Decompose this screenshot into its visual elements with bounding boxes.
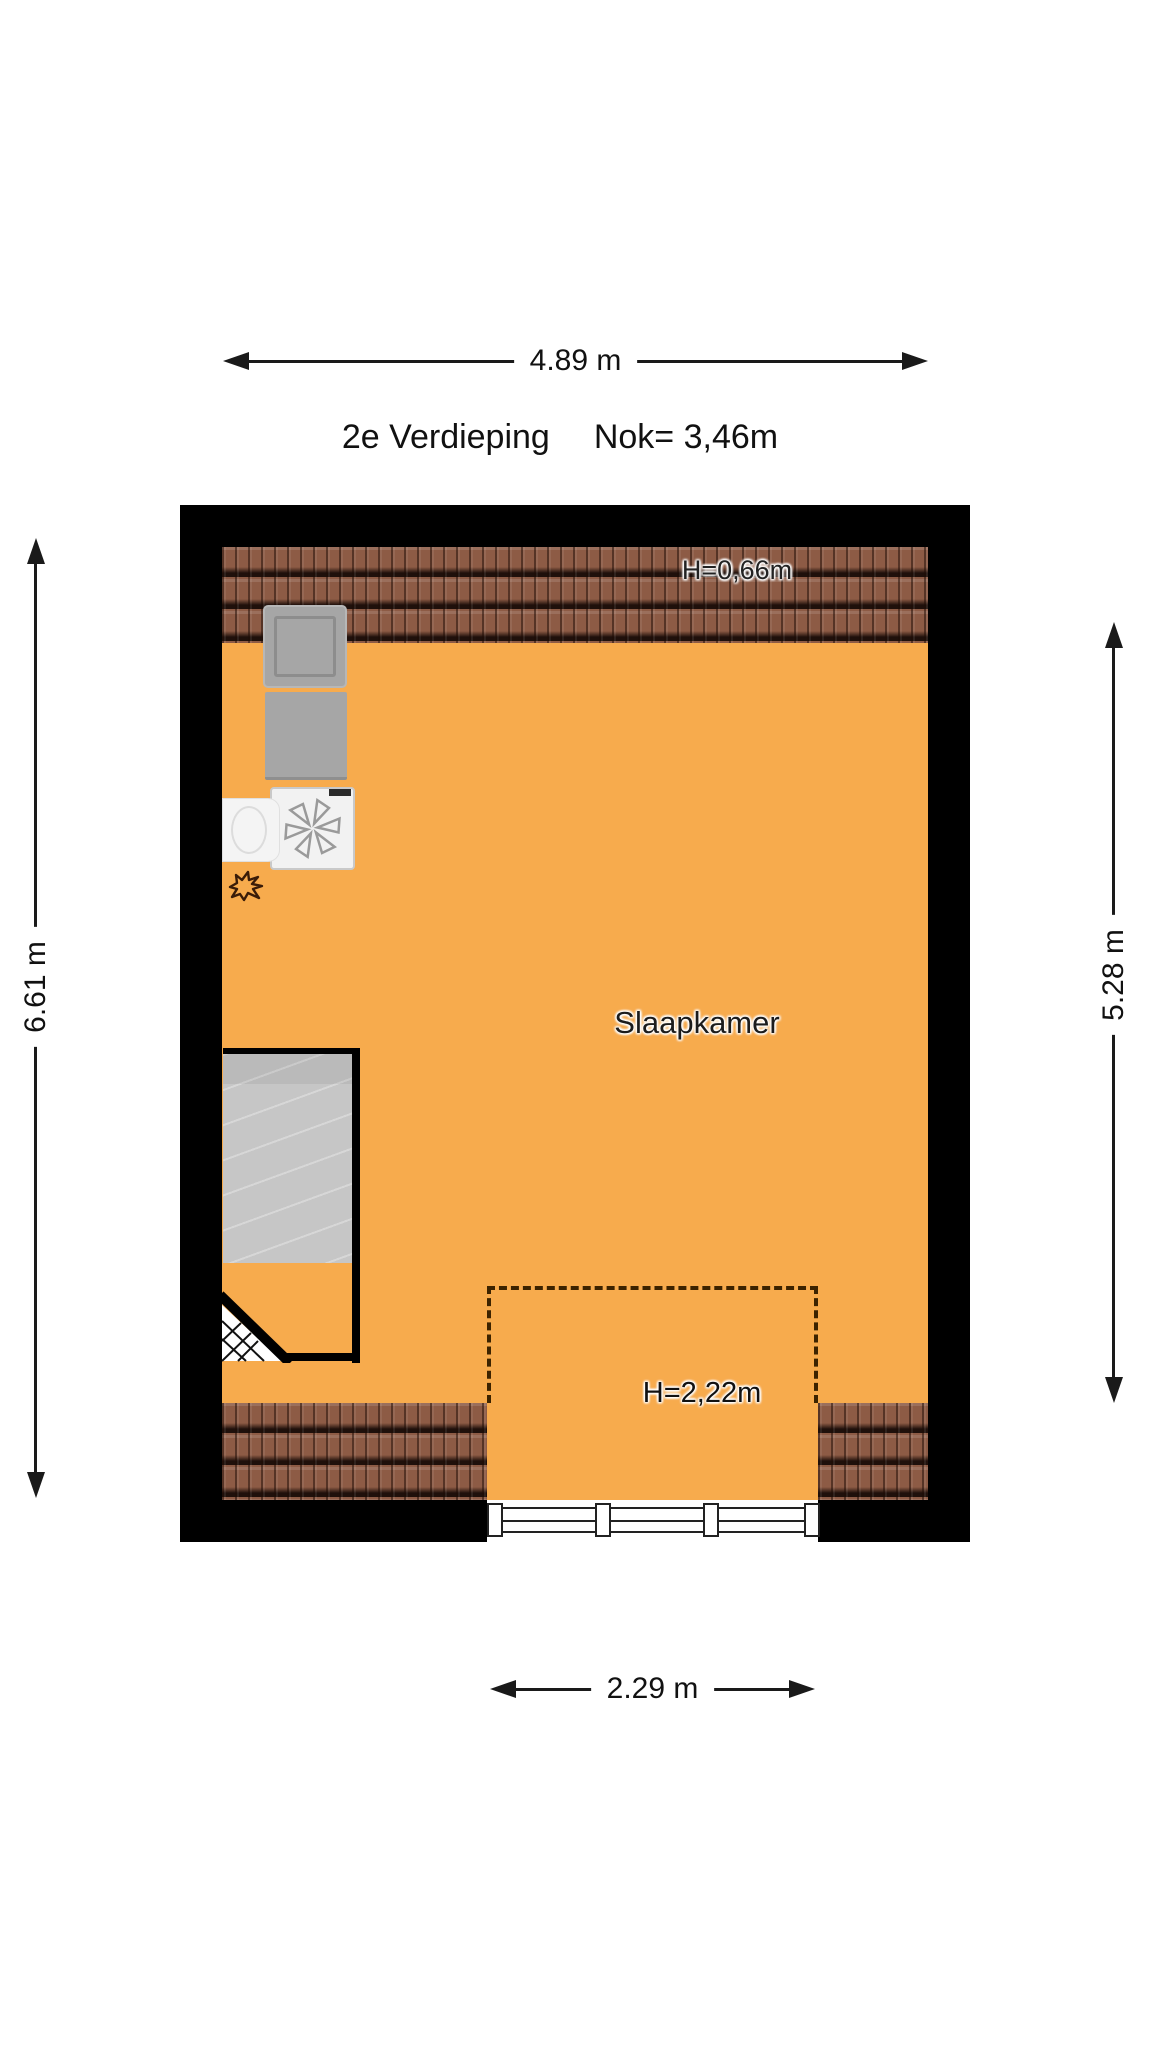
arrowhead-right-icon [902, 352, 928, 370]
stair-side-wall [352, 1054, 360, 1363]
dormer-dashed-left [487, 1286, 491, 1403]
dimension-right: 5.28 m [1100, 622, 1128, 1403]
arrowhead-right-icon [789, 1680, 815, 1698]
sink-unit [222, 798, 280, 862]
window-mullion [703, 1503, 719, 1537]
dimension-right-label: 5.28 m [1097, 915, 1131, 1035]
window-post [804, 1503, 820, 1537]
window-mullion [595, 1503, 611, 1537]
dimension-bottom-label: 2.29 m [591, 1672, 715, 1706]
ridge-height: Nok= 3,46m [594, 418, 778, 456]
arrowhead-down-icon [27, 1472, 45, 1498]
dimension-bottom: 2.29 m [490, 1674, 815, 1704]
dimension-left: 6.61 m [22, 538, 50, 1498]
staircase [223, 1054, 352, 1263]
dimension-top: 4.89 m [223, 346, 928, 376]
dormer-dashed-top [487, 1286, 818, 1290]
washing-machine-door-icon [274, 616, 336, 677]
stair-void-hatch [222, 1285, 302, 1363]
dimension-top-label: 4.89 m [514, 344, 638, 378]
bedroom-floor: H=0,66m Slaapkamer H=2,22m [222, 547, 928, 1500]
ventilation-unit [270, 787, 355, 870]
floor-plan-page: 4.89 m 2e VerdiepingNok= 3,46m 6.61 m 5.… [0, 0, 1152, 2048]
dormer-height-label: H=2,22m [552, 1377, 852, 1410]
sink-bowl-icon [231, 806, 267, 854]
outer-walls: H=0,66m Slaapkamer H=2,22m [180, 505, 970, 1542]
plant-icon [228, 869, 270, 903]
washing-machine [263, 605, 347, 688]
roof-slope-bottom-right [818, 1403, 928, 1500]
dryer-unit [265, 692, 347, 780]
window-post [487, 1503, 503, 1537]
roof-slope-bottom-left [222, 1403, 487, 1500]
page-title: 2e VerdiepingNok= 3,46m [0, 418, 1120, 457]
dimension-left-label: 6.61 m [19, 927, 53, 1047]
fan-icon [272, 789, 353, 868]
dormer-dashed-right [814, 1286, 818, 1403]
floor-title: 2e Verdieping [342, 418, 550, 456]
knee-wall-height-label: H=0,66m [587, 555, 887, 586]
room-name-label: Slaapkamer [497, 1005, 897, 1041]
dormer-window [487, 1500, 818, 1542]
arrowhead-down-icon [1105, 1377, 1123, 1403]
window-glass-line [487, 1520, 818, 1522]
